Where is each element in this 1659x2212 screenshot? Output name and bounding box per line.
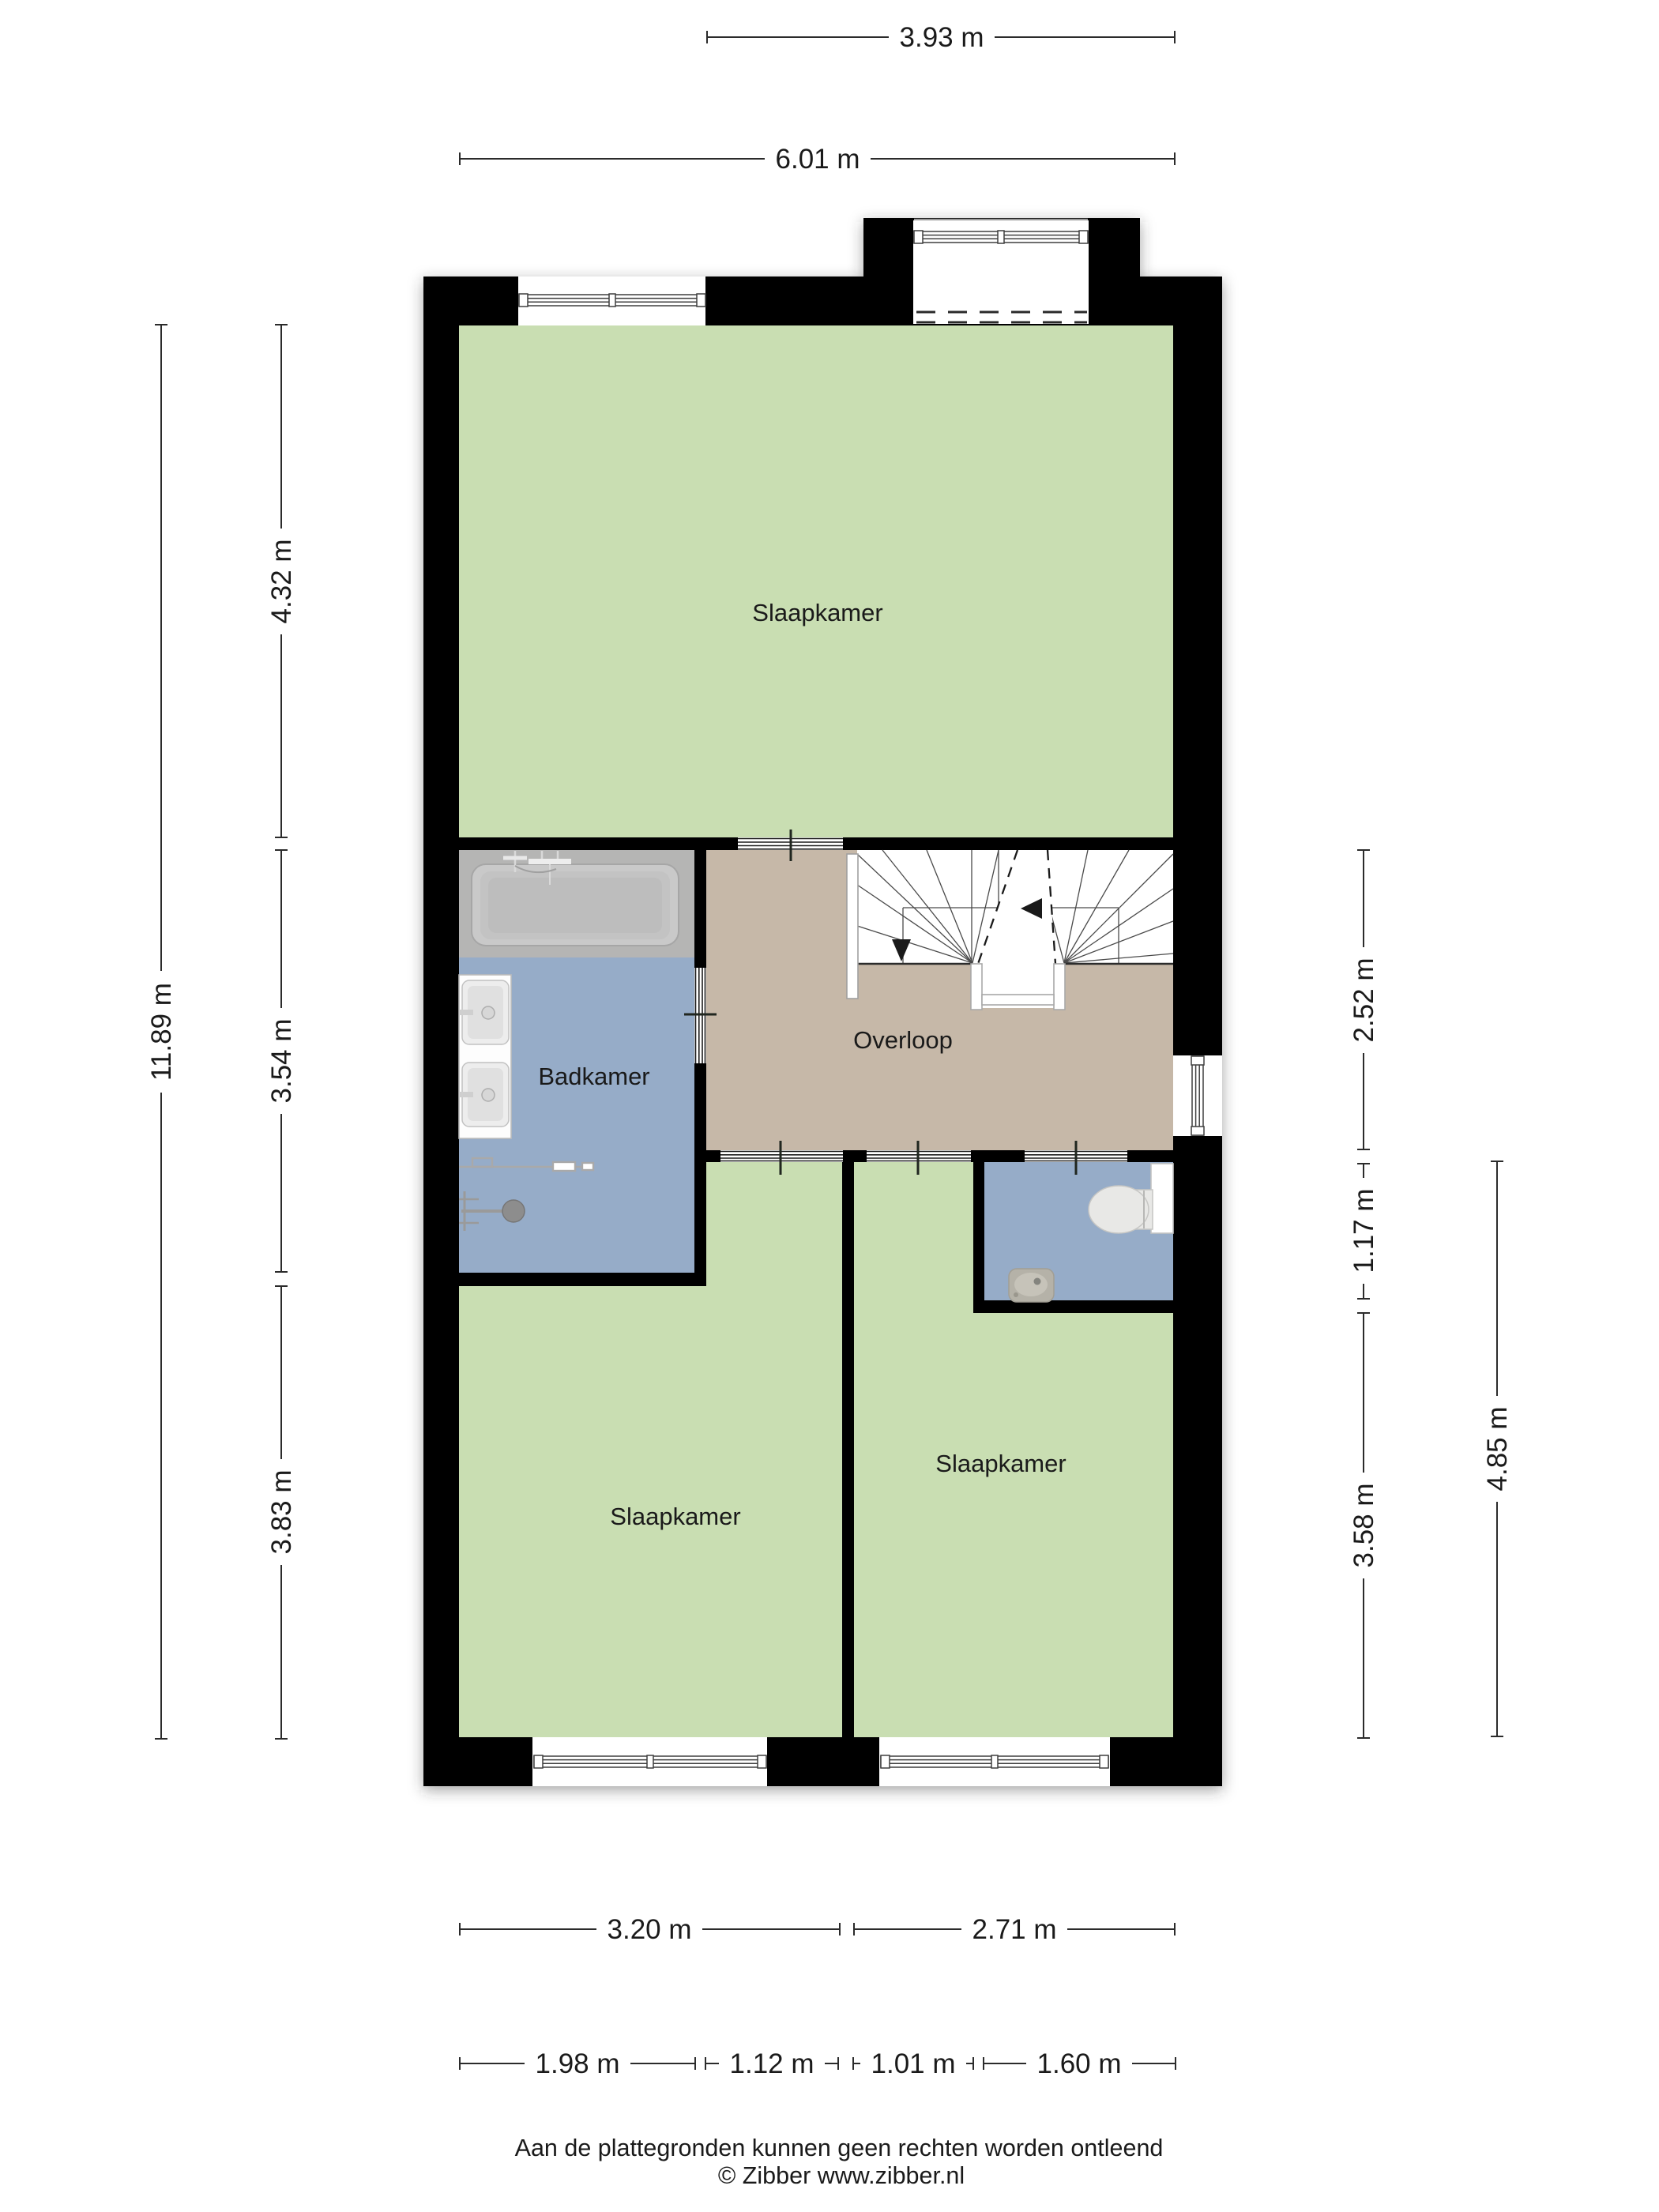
svg-text:11.89 m: 11.89 m bbox=[146, 983, 177, 1081]
svg-text:1.17 m: 1.17 m bbox=[1349, 1189, 1379, 1273]
svg-text:1.01 m: 1.01 m bbox=[871, 2048, 956, 2079]
svg-text:1.60 m: 1.60 m bbox=[1037, 2048, 1122, 2079]
svg-text:Aan de plattegronden kunnen ge: Aan de plattegronden kunnen geen rechten… bbox=[515, 2135, 1164, 2161]
svg-text:Slaapkamer: Slaapkamer bbox=[610, 1503, 740, 1530]
svg-text:Overloop: Overloop bbox=[853, 1026, 953, 1054]
svg-text:3.58 m: 3.58 m bbox=[1349, 1484, 1379, 1568]
svg-text:3.20 m: 3.20 m bbox=[608, 1914, 692, 1945]
svg-text:3.93 m: 3.93 m bbox=[900, 22, 984, 53]
svg-text:4.85 m: 4.85 m bbox=[1482, 1407, 1513, 1492]
svg-text:3.54 m: 3.54 m bbox=[266, 1019, 297, 1104]
svg-text:Badkamer: Badkamer bbox=[538, 1063, 649, 1090]
svg-text:1.98 m: 1.98 m bbox=[536, 2048, 620, 2079]
svg-text:2.71 m: 2.71 m bbox=[972, 1914, 1057, 1945]
svg-text:Slaapkamer: Slaapkamer bbox=[935, 1450, 1066, 1477]
svg-text:2.52 m: 2.52 m bbox=[1349, 958, 1379, 1043]
svg-text:3.83 m: 3.83 m bbox=[266, 1470, 297, 1555]
svg-text:1.12 m: 1.12 m bbox=[730, 2048, 814, 2079]
svg-text:© Zibber www.zibber.nl: © Zibber www.zibber.nl bbox=[718, 2162, 965, 2189]
svg-text:Slaapkamer: Slaapkamer bbox=[752, 599, 882, 626]
svg-text:4.32 m: 4.32 m bbox=[266, 540, 297, 624]
svg-text:6.01 m: 6.01 m bbox=[776, 144, 860, 175]
